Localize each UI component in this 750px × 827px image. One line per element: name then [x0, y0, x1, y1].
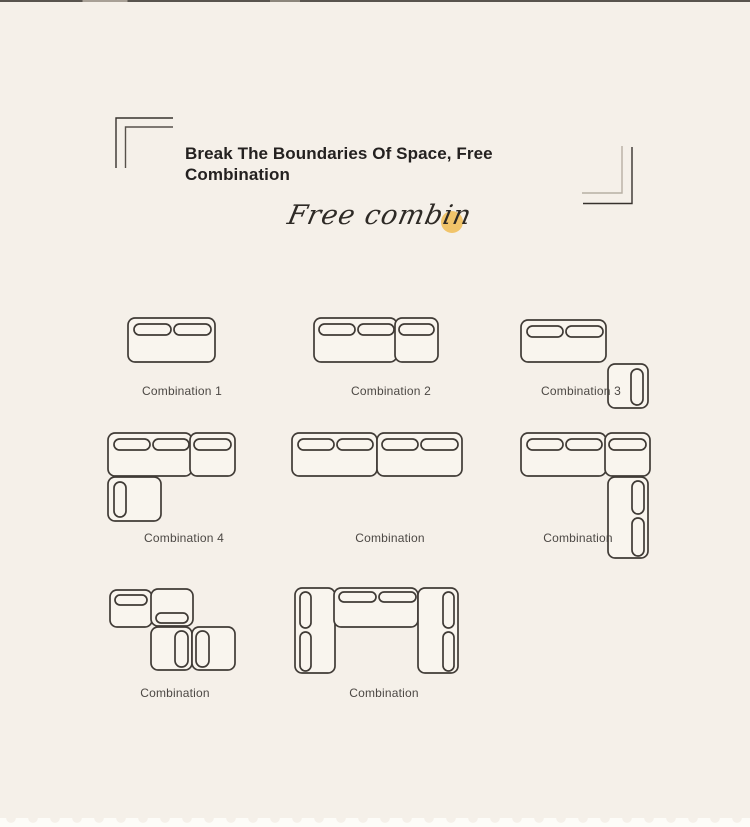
combination-label-3: Combination 3 [541, 384, 621, 398]
combination-label-7: Combination [140, 686, 210, 700]
sofa-cushion-pill [631, 369, 643, 405]
sofa-cushion-pill [382, 439, 418, 450]
sofa-cushion-pill [115, 595, 147, 605]
sofa-cushion-pill [421, 439, 458, 450]
sofa-cushion-pill [300, 592, 311, 628]
sofa-cushion-pill [632, 518, 644, 556]
sofa-cushion-pill [300, 632, 311, 671]
sofa-cushion-pill [175, 631, 188, 667]
sofa-cushion-pill [174, 324, 211, 335]
sofa-cushion-pill [298, 439, 334, 450]
corner-bracket-bottom-right [583, 147, 632, 204]
sofa-cushion-pill [566, 439, 602, 450]
sofa-combination-infographic: Break The Boundaries Of Space, FreeCombi… [0, 0, 750, 827]
sofa-cushion-pill [114, 439, 150, 450]
sofa-cushion-pill [443, 632, 454, 671]
sofa-cushion-pill [358, 324, 394, 335]
sofa-cushion-pill [379, 592, 416, 602]
sofa-cushion-pill [632, 481, 644, 514]
combination-label-2: Combination 2 [351, 384, 431, 398]
combination-label-1: Combination 1 [142, 384, 222, 398]
bottom-scallop-edge [0, 818, 750, 827]
corner-bracket-bottom-right [582, 146, 622, 193]
sofa-cushion-pill [566, 326, 603, 337]
sofa-cushion-pill [339, 592, 376, 602]
sofa-cushion-pill [527, 439, 563, 450]
sofa-cushion-pill [337, 439, 373, 450]
sofa-cushion-pill [134, 324, 171, 335]
sofa-cushion-pill [399, 324, 434, 335]
sofa-cushion-pill [609, 439, 646, 450]
corner-bracket-top-left [126, 127, 174, 168]
sofa-diagram-layer [0, 0, 750, 827]
sofa-cushion-pill [319, 324, 355, 335]
sofa-cushion-pill [156, 613, 188, 623]
combination-label-5: Combination [355, 531, 425, 545]
sofa-cushion-pill [153, 439, 189, 450]
corner-bracket-top-left [116, 118, 173, 168]
sofa-cushion-pill [114, 482, 126, 517]
combination-label-4: Combination 4 [144, 531, 224, 545]
sofa-cushion-pill [196, 631, 209, 667]
sofa-cushion-pill [194, 439, 231, 450]
sofa-cushion-pill [443, 592, 454, 628]
combination-label-6: Combination [543, 531, 613, 545]
combination-label-8: Combination [349, 686, 419, 700]
sofa-cushion-pill [527, 326, 563, 337]
